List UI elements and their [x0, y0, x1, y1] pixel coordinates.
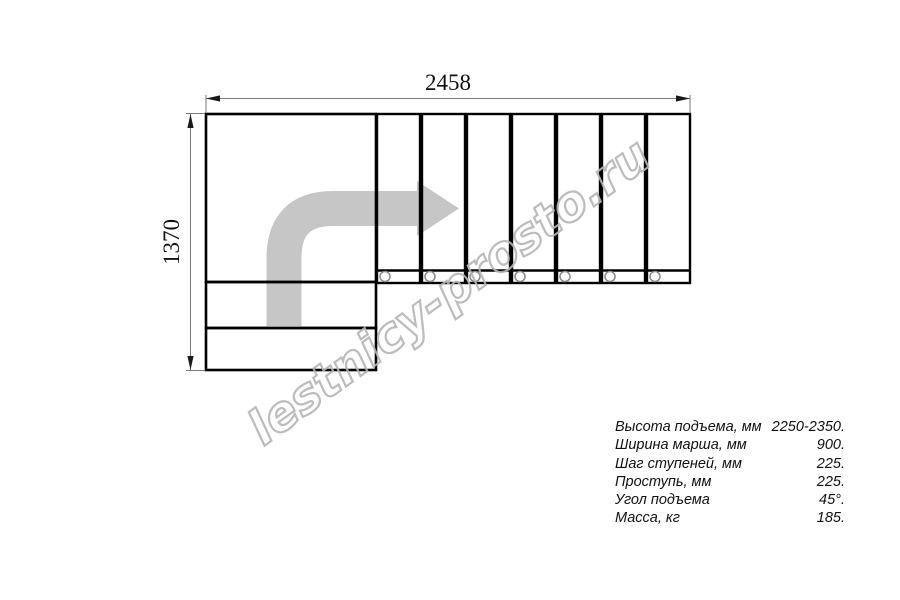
dimension-arrow-left-icon — [206, 95, 220, 101]
spec-label: Угол подъема — [615, 491, 710, 509]
direction-arrow-shaft — [284, 209, 420, 327]
dimension-arrow-down-icon — [187, 356, 193, 370]
spec-label: Шаг ступеней, мм — [615, 455, 742, 473]
direction-arrow-head-icon — [417, 181, 459, 236]
spec-label: Высота подъема, мм — [615, 418, 762, 436]
spec-row: Шаг ступеней, мм 225. — [615, 455, 845, 473]
spec-row: Угол подъема 45°. — [615, 491, 845, 509]
spec-row: Высота подъема, мм 2250-2350. — [615, 418, 845, 436]
direction-arrow — [284, 181, 459, 326]
spec-label: Проступь, мм — [615, 473, 711, 491]
tread-marker-circle-icon — [560, 272, 570, 282]
tread-7 — [647, 114, 690, 283]
spec-row: Масса, кг 185. — [615, 509, 845, 527]
tread-marker-circle-icon — [425, 272, 435, 282]
spec-label: Ширина марша, мм — [615, 436, 747, 454]
staircase-drawing-page: 2458 1370 lestnicy-prosto.ru Высота подъ… — [0, 0, 900, 600]
tread-marker-circle-icon — [650, 272, 660, 282]
dimension-arrow-up-icon — [187, 114, 193, 128]
spec-row: Проступь, мм 225. — [615, 473, 845, 491]
tread-6 — [602, 114, 645, 283]
tread-marker-circle-icon — [515, 272, 525, 282]
spec-label: Масса, кг — [615, 509, 680, 527]
dimension-left-label: 1370 — [159, 219, 184, 265]
dimension-left: 1370 — [159, 114, 205, 371]
spec-value: 225. — [817, 473, 845, 491]
spec-value: 225. — [817, 455, 845, 473]
tread-marker-circle-icon — [380, 272, 390, 282]
spec-value: 185. — [817, 509, 845, 527]
spec-table: Высота подъема, мм 2250-2350. Ширина мар… — [615, 418, 845, 528]
dimension-top-label: 2458 — [425, 70, 471, 95]
tread-marker-circle-icon — [605, 272, 615, 282]
dimension-arrow-right-icon — [676, 95, 690, 101]
spec-value: 900. — [817, 436, 845, 454]
tread-marker-circle-icon — [470, 272, 480, 282]
tread-4 — [512, 114, 555, 283]
lower-step-2 — [206, 328, 376, 370]
spec-value: 2250-2350. — [772, 418, 845, 436]
tread-3 — [467, 114, 510, 283]
tread-5 — [557, 114, 600, 283]
spec-row: Ширина марша, мм 900. — [615, 436, 845, 454]
spec-value: 45°. — [819, 491, 845, 509]
dimension-top: 2458 — [206, 70, 690, 113]
